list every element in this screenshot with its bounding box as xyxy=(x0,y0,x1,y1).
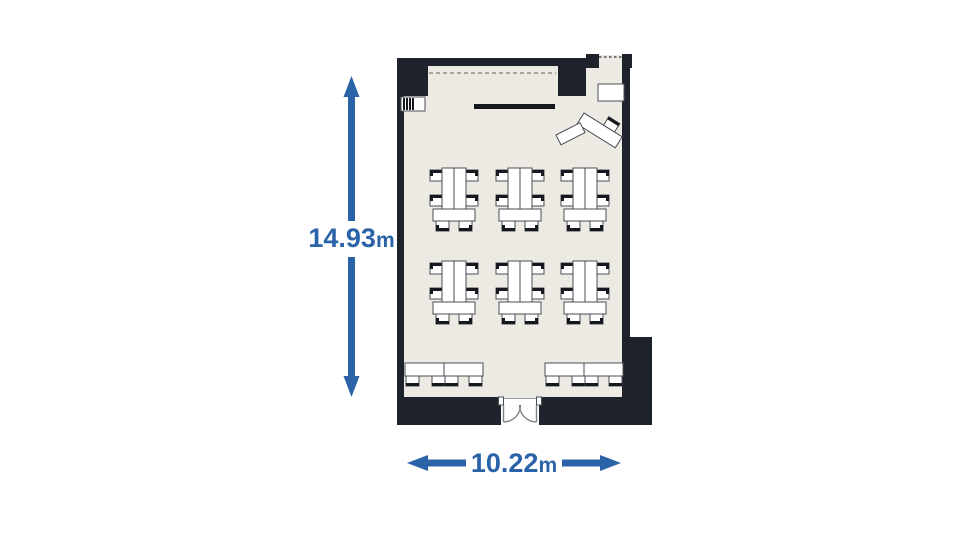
wall-segment xyxy=(586,54,599,68)
door-jamb xyxy=(537,397,542,405)
wall-segment xyxy=(622,62,630,345)
floorplan-canvas: 14.93m 10.22m xyxy=(0,0,960,540)
floorplan-svg: 14.93m 10.22m xyxy=(0,0,960,540)
radiator xyxy=(401,97,425,111)
arrow-down-icon xyxy=(344,376,360,397)
wall-pier xyxy=(558,58,586,96)
arrow-up-icon xyxy=(344,76,360,97)
width-dimension-label: 10.22m xyxy=(471,448,557,478)
radiator-fin xyxy=(406,98,408,110)
double-door xyxy=(499,397,542,422)
arrow-left-icon xyxy=(407,455,428,471)
height-dimension-label: 14.93m xyxy=(308,223,394,253)
height-dimension: 14.93m xyxy=(308,76,394,397)
back-table xyxy=(545,363,623,386)
wall-projection xyxy=(622,337,652,425)
door-swing-arc xyxy=(520,405,537,422)
radiator-fin xyxy=(412,98,414,110)
radiator-fin xyxy=(403,98,405,110)
door-jamb xyxy=(499,397,504,405)
radiator-fin xyxy=(409,98,411,110)
arrow-right-icon xyxy=(600,455,621,471)
corner-table xyxy=(598,84,624,101)
wall-segment xyxy=(397,397,501,425)
door-swing-arc xyxy=(504,405,521,422)
back-table xyxy=(405,363,483,386)
whiteboard xyxy=(474,104,555,109)
width-dimension: 10.22m xyxy=(407,448,621,478)
wall-segment xyxy=(539,397,624,425)
